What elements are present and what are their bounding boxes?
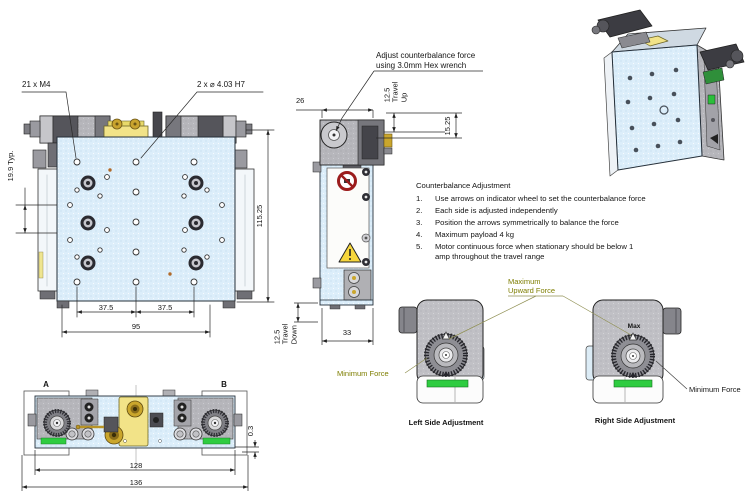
note-number: 3. [416,218,435,228]
dim-travel-down: 12.5 Travel Down [273,324,298,345]
note-number: 2. [416,206,435,216]
note-item: 5. Motor continuous force when stationar… [416,242,708,261]
caption-left-side-adjustment: Left Side Adjustment [409,418,484,427]
note-text: Each side is adjusted independently [435,206,708,216]
note-text: Position the arrows symmetrically to bal… [435,218,708,228]
note-item: 4. Maximum payload 4 kg [416,230,708,240]
front-connector-block [104,119,148,138]
label-max-tick: Max [628,323,641,331]
bottom-indicator-wheel-right [202,410,228,436]
bottom-indicator-wheel-left [44,410,70,436]
caption-right-side-adjustment: Right Side Adjustment [595,416,675,425]
dim-115-25: 115.25 [256,205,264,227]
dim-37-5-right: 37.5 [158,303,173,312]
view-marker-b: B [221,380,227,390]
right-side-adjustment-detail [586,300,681,403]
callout-m4: 21 x M4 [22,80,50,90]
green-indicator-detail-left [427,380,468,387]
callout-hex-wrench: Adjust counterbalance force using 3.0mm … [376,51,475,70]
dim-37-5-left: 37.5 [99,303,114,312]
label-maximum-upward-force: Maximum Upward Force [508,277,555,295]
note-item: 1. Use arrows on indicator wheel to set … [416,194,708,204]
isometric-motor-right [700,44,744,84]
front-view [16,92,274,337]
note-number: 1. [416,194,435,204]
dim-136: 136 [130,478,143,487]
note-text: Motor continuous force when stationary s… [435,242,708,261]
note-text: Use arrows on indicator wheel to set the… [435,194,708,204]
counterbalance-notes: Counterbalance Adjustment 1. Use arrows … [416,181,708,261]
engineering-drawing-page: 21 x M4 2 x ⌀ 4.03 H7 19.9 Typ. 115.25 3… [0,0,750,496]
label-minimum-force-left: Minimum Force [337,369,389,378]
dim-128: 128 [130,461,143,470]
dim-travel-up: 12.5 Travel Up [383,82,408,103]
note-item: 2. Each side is adjusted independently [416,206,708,216]
isometric-view [592,10,744,176]
green-indicator-right [203,438,230,444]
note-text: Maximum payload 4 kg [435,230,708,240]
dim-19-9-typ: 19.9 Typ. [7,151,15,182]
counterbalance-adjuster [320,120,392,165]
green-indicator-detail-right [614,380,652,387]
dim-33: 33 [343,328,351,337]
callout-h7: 2 x ⌀ 4.03 H7 [197,80,245,90]
note-item: 3. Position the arrows symmetrically to … [416,218,708,228]
dowel-pin [153,112,162,138]
view-marker-a: A [43,380,49,390]
green-indicator-left [41,438,66,444]
dim-26: 26 [296,96,304,105]
no-touch-sign [339,173,356,190]
dim-15-25: 15.25 [444,117,452,136]
dim-0-3: 0.3 [247,426,255,436]
notes-title: Counterbalance Adjustment [416,181,708,191]
note-number: 4. [416,230,435,240]
left-side-adjustment-detail [399,300,484,403]
bottom-view [22,385,259,491]
note-number: 5. [416,242,435,261]
dim-95: 95 [132,322,140,331]
label-minimum-force-right: Minimum Force [689,385,741,394]
